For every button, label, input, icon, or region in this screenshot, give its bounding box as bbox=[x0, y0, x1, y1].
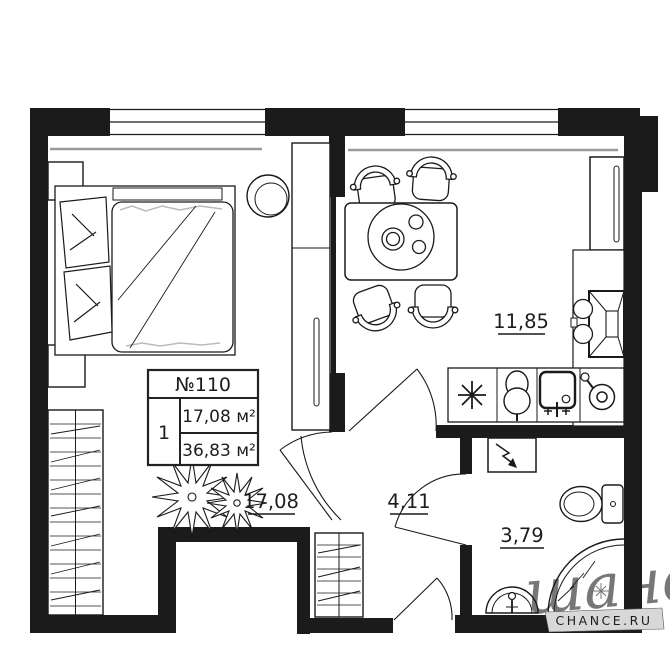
tall-wardrobe bbox=[292, 143, 330, 430]
wall-kitchen-bottom bbox=[436, 425, 642, 438]
wall-step bbox=[158, 527, 176, 633]
rooms-count: 1 bbox=[158, 422, 170, 444]
wall-bottom-middle bbox=[297, 618, 393, 633]
living-area-value: 17,08 м² bbox=[182, 407, 256, 427]
bed bbox=[55, 186, 235, 355]
burner bbox=[574, 300, 593, 319]
kitchen-window bbox=[405, 110, 558, 135]
wall-corner-tr bbox=[640, 116, 658, 192]
toilet-icon bbox=[560, 485, 623, 523]
wardrobe-handle bbox=[314, 318, 319, 406]
fridge bbox=[590, 157, 624, 250]
wall-bottom-left bbox=[30, 615, 176, 633]
watermark: шанс CHANCE.RU bbox=[522, 541, 670, 632]
headboard-strip bbox=[113, 188, 222, 200]
wall-partition-top bbox=[329, 133, 345, 197]
floor-plan-page: №110 1 17,08 м² 36,83 м² 11,85 17,08 4,1… bbox=[0, 0, 670, 663]
total-area-value: 36,83 м² bbox=[182, 441, 256, 461]
wall-top-right bbox=[558, 108, 640, 136]
apartment-number: №110 bbox=[175, 374, 231, 396]
pillow bbox=[60, 197, 109, 268]
info-table: №110 1 17,08 м² 36,83 м² bbox=[148, 370, 258, 465]
pillow bbox=[64, 266, 112, 340]
hob-asterisk-icon bbox=[458, 381, 486, 409]
bathroom-area-label: 3,79 bbox=[500, 524, 543, 547]
kitchen-door bbox=[349, 369, 436, 431]
wall-bedroom-bottom bbox=[158, 527, 310, 542]
watermark-site: CHANCE.RU bbox=[556, 613, 653, 628]
duvet bbox=[112, 202, 233, 352]
kitchen-furniture bbox=[345, 155, 624, 426]
bedroom-area-label: 17,08 bbox=[243, 490, 299, 513]
chair bbox=[345, 281, 406, 338]
mirror-icon bbox=[247, 175, 289, 217]
entrance-door bbox=[394, 578, 452, 620]
closet-hatched-hall bbox=[315, 533, 363, 617]
chair bbox=[408, 285, 458, 328]
electric-box bbox=[488, 438, 536, 472]
wall-bath-jamb-top bbox=[460, 438, 472, 474]
counter-bottom bbox=[448, 368, 624, 422]
wall-left bbox=[30, 108, 48, 633]
wall-partition-bottom bbox=[329, 373, 345, 432]
bedroom-window bbox=[110, 110, 265, 135]
wall-bath-jamb-bottom bbox=[460, 545, 472, 615]
chair bbox=[405, 155, 457, 201]
closet-hatched-left bbox=[48, 410, 103, 615]
dining-table bbox=[345, 203, 457, 280]
kitchen-area-label: 11,85 bbox=[493, 310, 549, 333]
kitchen-sink-unit bbox=[589, 291, 624, 357]
hallway-area-label: 4,11 bbox=[387, 490, 430, 513]
sink-square-icon bbox=[540, 372, 575, 417]
wall-top-middle bbox=[265, 108, 405, 136]
wall-partition-thin bbox=[331, 195, 336, 375]
hallway-furniture bbox=[315, 533, 363, 617]
floor-plan: №110 1 17,08 м² 36,83 м² 11,85 17,08 4,1… bbox=[0, 0, 670, 663]
